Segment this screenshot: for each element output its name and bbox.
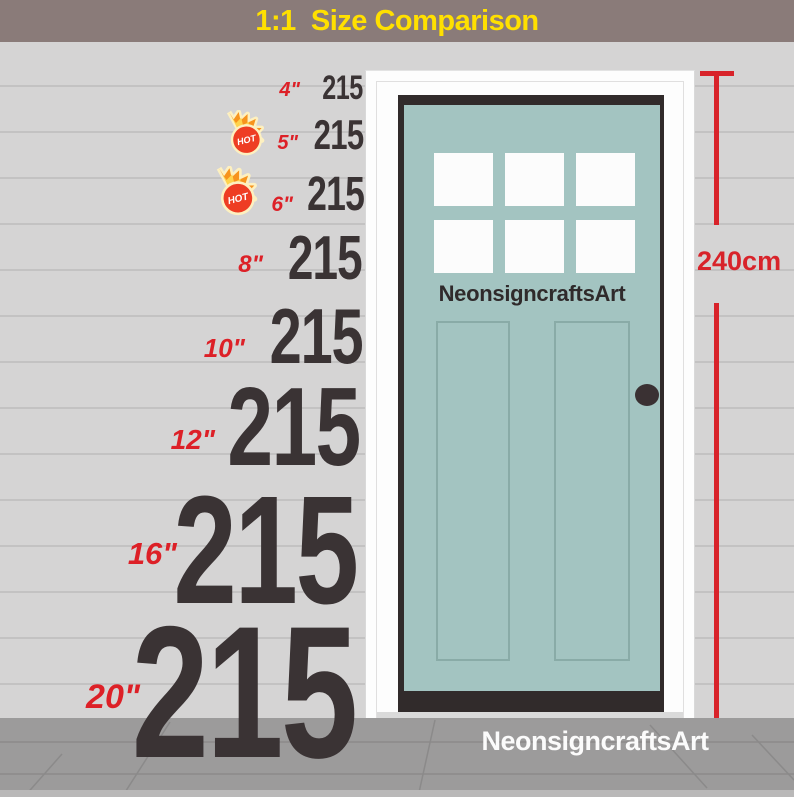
floor: NeonsigncraftsArt <box>0 718 794 797</box>
banner: 1:1 Size Comparison <box>0 0 794 42</box>
number-215-4in: 215 <box>323 71 363 105</box>
size-label-5in: 5" <box>277 133 298 153</box>
size-comparison-infographic: 1:1 Size Comparison NeonsigncraftsArt N <box>0 0 794 797</box>
size-label-16in: 16" <box>128 538 177 569</box>
number-215-20in: 215 <box>131 598 355 786</box>
size-label-8in: 8" <box>238 253 263 277</box>
size-label-20in: 20" <box>86 680 140 714</box>
door-window-pane <box>576 220 635 273</box>
door-window-pane <box>434 220 493 273</box>
floor-brand-text: NeonsigncraftsArt <box>440 726 750 757</box>
size-label-12in: 12" <box>171 426 215 454</box>
door-face: NeonsigncraftsArt <box>404 105 660 691</box>
size-label-4in: 4" <box>279 80 300 100</box>
door-brand-text: NeonsigncraftsArt <box>404 281 660 307</box>
door-sill <box>377 712 683 718</box>
door-window-pane <box>576 153 635 206</box>
door: NeonsigncraftsArt <box>398 95 664 713</box>
door-window-pane <box>434 153 493 206</box>
door-panel-right <box>554 321 630 661</box>
door-frame: NeonsigncraftsArt <box>365 70 695 718</box>
door-knob <box>635 384 659 406</box>
number-215-10in: 215 <box>269 297 362 375</box>
hot-flame-icon: HOT <box>217 110 265 158</box>
floor-edge-strip <box>0 790 794 797</box>
size-label-6in: 6" <box>271 194 293 215</box>
measurement-line-upper <box>714 71 719 225</box>
door-window-pane <box>505 153 564 206</box>
door-height-label: 240cm <box>697 246 781 277</box>
hot-flame-icon: HOT <box>206 166 258 218</box>
door-window-pane <box>505 220 564 273</box>
measurement-line-lower <box>714 303 719 718</box>
number-215-6in: 215 <box>307 171 364 219</box>
number-215-5in: 215 <box>314 114 364 156</box>
door-panel-left <box>436 321 510 661</box>
size-label-10in: 10" <box>204 335 245 361</box>
banner-title: 1:1 Size Comparison <box>255 5 538 38</box>
number-215-8in: 215 <box>288 228 362 290</box>
